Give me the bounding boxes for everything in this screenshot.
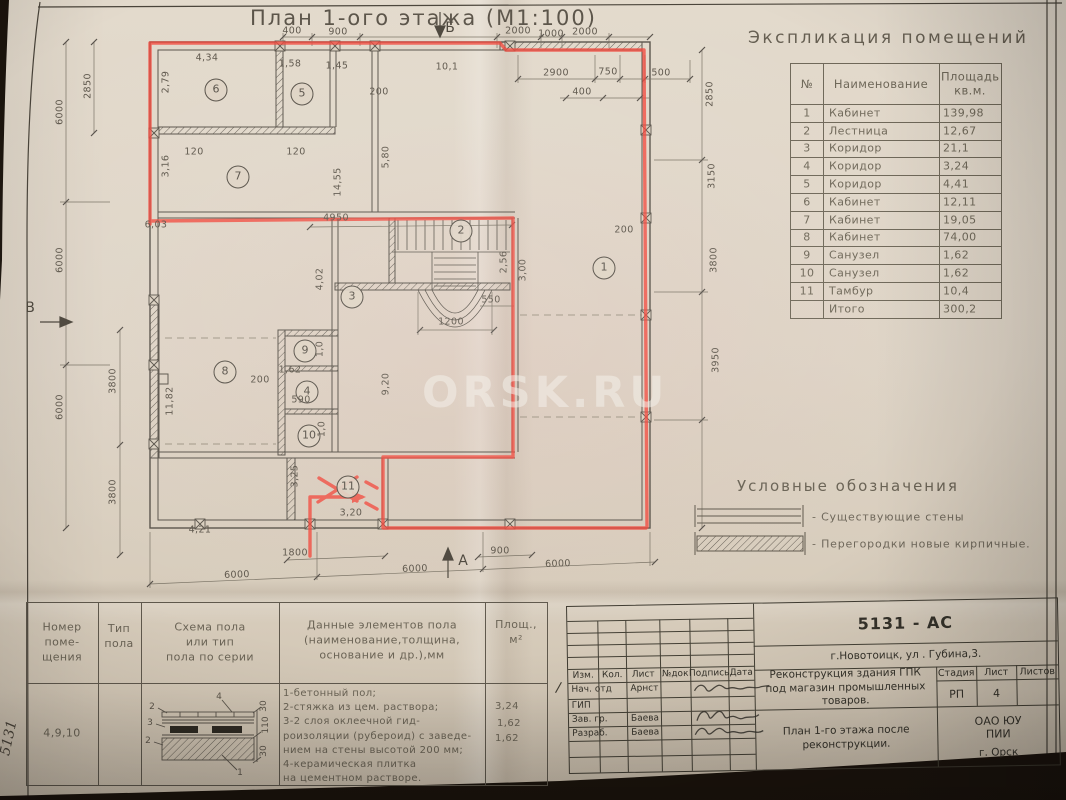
- dim-label: 500: [651, 68, 670, 79]
- dim-label: 3,25: [290, 465, 301, 488]
- table-cell: 12,11: [943, 196, 977, 209]
- table-cell: Кабинет: [829, 214, 881, 227]
- dim-label: 1,45: [326, 61, 349, 72]
- legend-wall-symbols: [695, 505, 805, 555]
- table-divider: [823, 64, 824, 318]
- floor-data-text: 1-бетонный пол; 2-стяжка из цем. раствор…: [283, 687, 471, 786]
- floor-type-table: Номер поме- щения Тип пола Схема пола ил…: [26, 602, 548, 786]
- table-divider: [98, 603, 99, 785]
- room-number-7: 7: [227, 166, 250, 189]
- table-divider: [791, 122, 1001, 123]
- dim-label: 1,0: [315, 341, 326, 357]
- legend-title: Условные обозначения: [737, 477, 959, 495]
- col-header-area: Площадь кв.м.: [941, 70, 999, 99]
- room-number-9: 9: [294, 340, 317, 363]
- dim-label: 3,20: [340, 508, 363, 519]
- scanned-drawing-photo: План 1-ого этажа (М1:100) Б В А 1 2 3 4 …: [0, 0, 1066, 800]
- dim-label: 400: [282, 26, 301, 37]
- dim-label: 900: [328, 27, 347, 38]
- explication-title: Экспликация помещений: [748, 28, 1028, 48]
- explication-table: № Наименование Площадь кв.м. 1 Кабинет 1…: [790, 63, 1002, 319]
- table-divider: [791, 264, 1001, 265]
- scheme-callout: 30: [259, 745, 269, 756]
- table-cell: 139,98: [943, 107, 984, 120]
- table-cell: Коридор: [829, 160, 882, 173]
- table-cell: 6: [803, 196, 810, 209]
- dim-label: 400: [572, 87, 591, 98]
- table-cell: 19,05: [943, 214, 977, 227]
- table-divider: [791, 300, 1001, 301]
- scheme-callout: 2: [145, 736, 151, 746]
- dim-label: 2,56: [499, 251, 510, 274]
- table-cell: 74,00: [943, 231, 977, 244]
- dim-label: 3,00: [518, 259, 529, 282]
- dim-label: 2900: [543, 68, 569, 79]
- table-cell: Кабинет: [829, 196, 881, 209]
- dim-label: 4950: [323, 213, 349, 224]
- table-cell: 21,1: [943, 142, 969, 155]
- table-cell: 3,24: [943, 160, 969, 173]
- table-divider: [791, 282, 1001, 283]
- dim-label: 2000: [505, 26, 531, 37]
- dim-label: 2850: [705, 81, 716, 107]
- table-divider: [939, 64, 940, 318]
- dim-label: 4,34: [196, 53, 219, 64]
- red-marker-outline: [150, 43, 647, 556]
- scheme-callout: 4: [216, 692, 222, 702]
- table-cell: Кабинет: [829, 107, 881, 120]
- room-numbers-cell: 4,9,10: [43, 727, 80, 740]
- scheme-callout: 110: [261, 716, 271, 733]
- room-number-2: 2: [450, 220, 473, 243]
- table-cell: Лестница: [829, 125, 888, 138]
- table-cell: Санузел: [829, 249, 880, 262]
- dim-label: 1,0: [317, 421, 328, 437]
- table-divider: [791, 246, 1001, 247]
- col-header-schema: Схема пола или тип пола по серии: [166, 621, 254, 666]
- area-value: 1,62: [497, 718, 521, 729]
- table-cell: 10: [800, 267, 815, 280]
- dim-label: 6000: [402, 563, 428, 575]
- dim-label: 1000: [538, 29, 564, 40]
- table-cell: 3: [803, 142, 810, 155]
- col-header-area: Площ., м²: [495, 618, 537, 648]
- table-cell: Кабинет: [829, 231, 881, 244]
- table-divider: [791, 175, 1001, 176]
- dim-label: 4,21: [189, 525, 212, 536]
- room-number-6: 6: [205, 79, 228, 102]
- dim-label: 2000: [572, 27, 598, 38]
- dim-label: 120: [286, 147, 305, 158]
- table-cell: 8: [803, 231, 810, 244]
- col-header-data: Данные элементов пола (наименование,толщ…: [304, 619, 460, 664]
- dim-label: 590: [291, 395, 310, 406]
- dim-label: 14,55: [333, 167, 344, 196]
- dim-label: 6000: [55, 99, 66, 125]
- dim-label: 9,20: [381, 373, 392, 396]
- table-cell: Итого: [829, 303, 865, 316]
- area-value: 1,62: [495, 733, 519, 744]
- axis-label-b: Б: [445, 20, 455, 36]
- table-cell: 1,62: [943, 267, 969, 280]
- title-block: 5131 - АС г.Новотоицк, ул . Губина,3. Ре…: [566, 597, 1061, 774]
- table-cell: 10,4: [943, 285, 969, 298]
- legend-item-existing-walls: - Существующие стены: [812, 511, 964, 524]
- col-header-name: Наименование: [834, 77, 928, 91]
- table-divider: [791, 140, 1001, 141]
- dim-label: 3,16: [161, 155, 172, 178]
- table-cell: 1,62: [943, 249, 969, 262]
- dim-label: 3800: [108, 368, 119, 394]
- dim-label: 2850: [83, 73, 94, 99]
- dim-label: 200: [614, 225, 633, 236]
- table-divider: [485, 603, 486, 785]
- dim-label: 2,79: [161, 71, 172, 94]
- dim-label: 1,58: [279, 59, 302, 70]
- signatures: [567, 598, 1060, 773]
- table-divider: [791, 104, 1001, 105]
- table-cell: Тамбур: [829, 285, 873, 298]
- room-number-11: 11: [337, 476, 360, 499]
- col-header-room: Номер поме- щения: [42, 621, 82, 666]
- table-divider: [791, 157, 1001, 158]
- scheme-callout: 30: [259, 700, 269, 711]
- axis-label-v: В: [25, 300, 35, 316]
- table-cell: 2: [803, 125, 810, 138]
- plan-title: План 1-ого этажа (М1:100): [250, 6, 597, 30]
- dim-label: 200: [250, 375, 269, 386]
- axis-arrows: [40, 12, 453, 578]
- room-number-1: 1: [593, 257, 616, 280]
- watermark: ORSK.RU: [422, 368, 668, 418]
- table-cell: 4,41: [943, 178, 969, 191]
- dim-label: 550: [481, 295, 500, 306]
- dim-label: 3950: [711, 347, 722, 373]
- col-header-type: Тип пола: [104, 622, 133, 652]
- room-number-8: 8: [214, 361, 237, 384]
- dim-label: 900: [490, 546, 509, 557]
- table-cell: 9: [803, 249, 810, 262]
- scheme-callout: 1: [237, 768, 243, 778]
- table-cell: 12,67: [943, 125, 977, 138]
- scheme-callout: 3: [147, 718, 153, 728]
- area-value: 3,24: [495, 701, 519, 712]
- dim-label: 6000: [224, 569, 250, 581]
- dim-label: 1,62: [279, 365, 302, 376]
- walls: [150, 42, 650, 528]
- table-cell: 7: [803, 214, 810, 227]
- table-divider: [279, 603, 280, 785]
- dim-label: 3150: [707, 163, 718, 189]
- dim-label: 6000: [55, 394, 66, 420]
- dim-label: 6000: [55, 247, 66, 273]
- dim-label: 11,82: [165, 386, 176, 415]
- dim-label: 5,80: [381, 146, 392, 169]
- dim-label: 4,02: [315, 268, 326, 291]
- col-header-num: №: [801, 77, 813, 91]
- dim-label: 120: [184, 147, 203, 158]
- table-cell: 11: [800, 285, 815, 298]
- table-cell: 1: [803, 107, 810, 120]
- dim-label: 3800: [108, 479, 119, 505]
- dim-label: 6,03: [145, 220, 168, 231]
- table-cell: 300,2: [943, 303, 977, 316]
- dim-label: 200: [369, 87, 388, 98]
- axis-label-a: А: [458, 553, 468, 569]
- table-cell: 5: [803, 178, 810, 191]
- table-cell: Санузел: [829, 267, 880, 280]
- table-divider: [27, 683, 547, 684]
- table-cell: 4: [803, 160, 810, 173]
- table-divider: [141, 603, 142, 785]
- table-divider: [791, 193, 1001, 194]
- dim-label: 3800: [709, 247, 720, 273]
- dim-label: 1800: [282, 548, 308, 559]
- dim-label: 10,1: [436, 62, 459, 73]
- dim-label: 6000: [545, 558, 571, 570]
- table-divider: [791, 211, 1001, 212]
- scheme-callout: 2: [149, 702, 155, 712]
- table-cell: Коридор: [829, 178, 882, 191]
- room-number-3: 3: [341, 286, 364, 309]
- dim-label: 750: [598, 67, 617, 78]
- legend-item-new-partitions: - Перегородки новые кирпичные.: [812, 538, 1030, 551]
- dim-label: 1200: [438, 317, 464, 328]
- room-number-5: 5: [291, 83, 314, 106]
- table-cell: Коридор: [829, 142, 882, 155]
